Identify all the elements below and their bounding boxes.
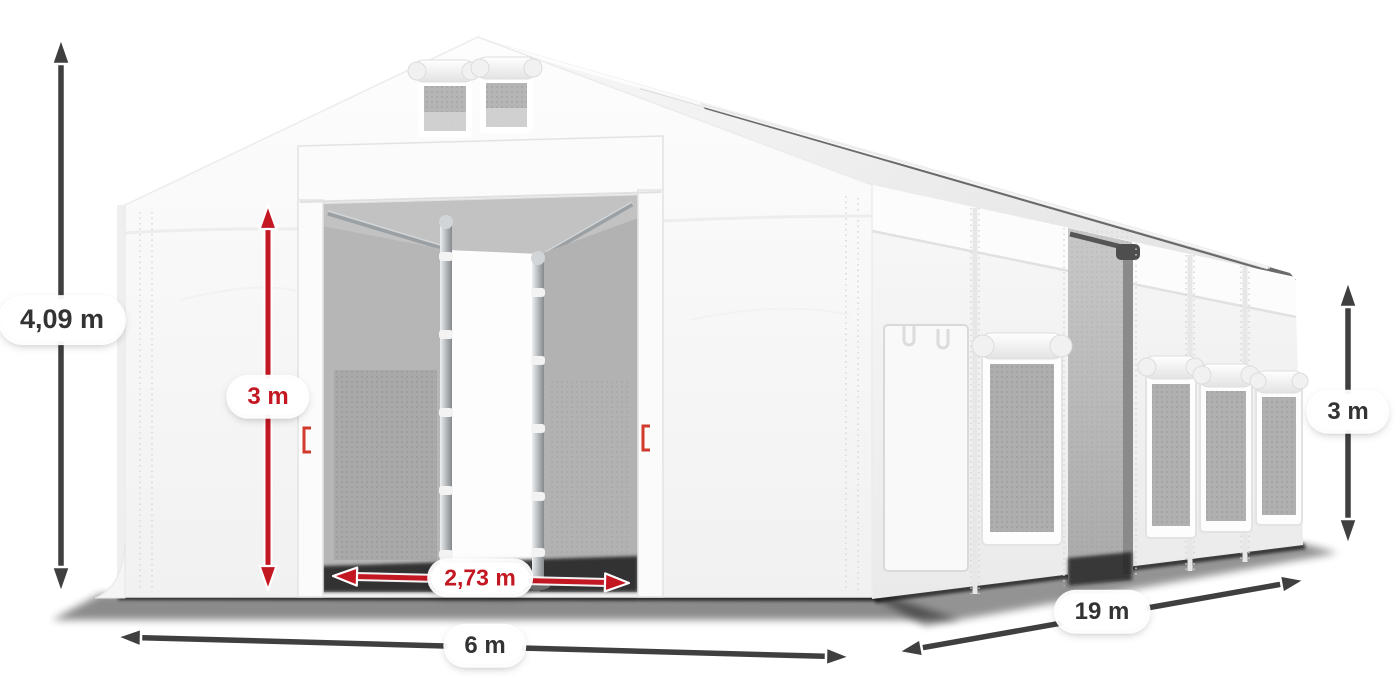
tent-dimensions-diagram: 4,09 m 3 m 2,73 m 6 m 19 m 3 m — [0, 0, 1400, 700]
side-window-1 — [972, 333, 1072, 545]
side-window-4 — [1250, 371, 1308, 525]
side-window-3 — [1193, 364, 1259, 532]
through-view — [447, 250, 540, 592]
gable-window-left — [408, 60, 480, 137]
entrance-height-label: 3 m — [230, 379, 305, 415]
tent-illustration — [0, 0, 1400, 700]
total-height-label: 4,09 m — [2, 299, 122, 341]
side-length-label: 19 m — [1058, 594, 1147, 630]
entrance-width-label: 2,73 m — [431, 562, 529, 593]
tent-side-wall — [872, 185, 1308, 599]
side-window-2 — [1138, 356, 1204, 538]
gable-window-right — [471, 57, 542, 133]
side-height-label: 3 m — [1310, 394, 1385, 430]
front-entrance-opening — [322, 194, 638, 592]
front-width-label: 6 m — [447, 628, 522, 664]
side-door-panel — [884, 325, 968, 571]
